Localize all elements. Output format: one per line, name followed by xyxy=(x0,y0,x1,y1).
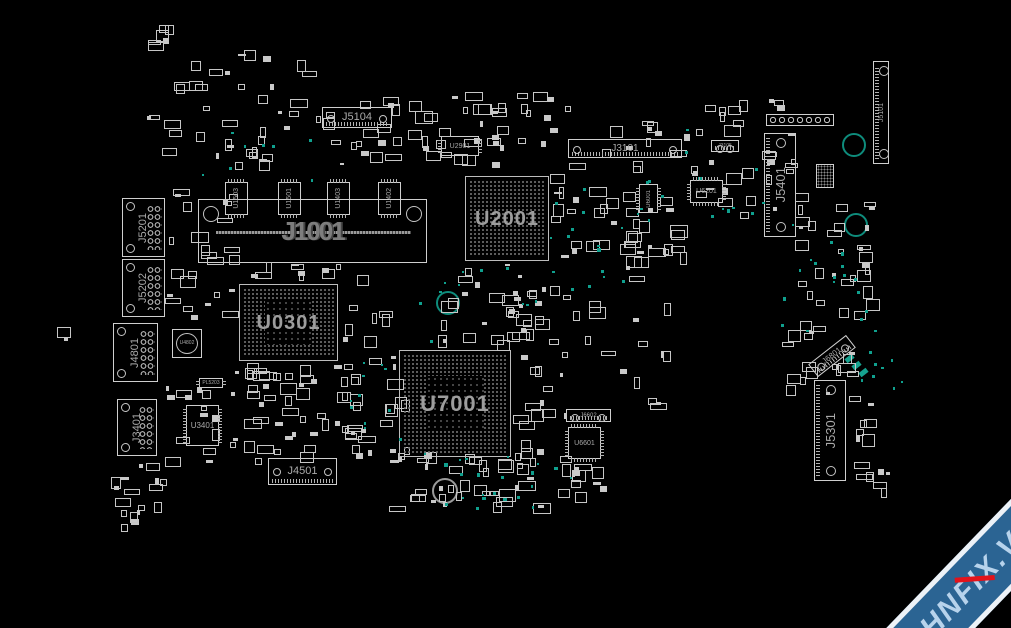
smd-part xyxy=(139,464,143,468)
connector-j5301-label: J5301 xyxy=(824,413,837,448)
smd-part xyxy=(856,474,873,480)
led-indicator xyxy=(858,368,868,377)
smd-part xyxy=(543,386,553,392)
test-point xyxy=(462,497,465,500)
test-point xyxy=(814,262,817,265)
smd-part xyxy=(248,385,258,394)
test-point xyxy=(458,284,460,286)
smd-part xyxy=(285,373,293,380)
smd-part xyxy=(183,306,193,312)
smd-part xyxy=(270,84,275,90)
smd-part xyxy=(492,162,500,168)
smd-part xyxy=(360,101,371,109)
smd-part xyxy=(336,264,342,270)
chip-u6601: U6601 xyxy=(568,427,601,459)
smd-part xyxy=(439,128,451,137)
smd-part xyxy=(560,373,563,377)
smd-part xyxy=(124,489,140,495)
smd-part xyxy=(513,291,518,295)
smd-part xyxy=(214,292,221,299)
smd-part xyxy=(379,311,394,318)
test-point xyxy=(244,145,247,148)
test-point xyxy=(384,368,387,371)
smd-part xyxy=(862,434,875,447)
test-point xyxy=(501,476,504,479)
smd-part xyxy=(473,104,491,116)
smd-part xyxy=(185,395,192,401)
smd-part xyxy=(572,249,577,254)
smd-part xyxy=(361,151,369,156)
test-point xyxy=(799,269,802,272)
smd-part xyxy=(799,227,803,230)
smd-part xyxy=(380,420,394,427)
smd-part xyxy=(558,489,570,498)
test-point xyxy=(860,318,863,321)
smd-part xyxy=(196,132,205,142)
smd-part xyxy=(273,373,281,381)
smd-part xyxy=(275,422,283,426)
smd-part xyxy=(878,469,884,475)
smd-part xyxy=(304,445,315,453)
test-point xyxy=(597,245,599,247)
smd-part xyxy=(549,339,559,346)
smd-part xyxy=(159,25,169,33)
test-point xyxy=(582,211,585,214)
smd-part xyxy=(589,187,606,197)
smd-part xyxy=(492,108,507,117)
smd-part xyxy=(670,225,688,238)
smd-part xyxy=(310,432,318,436)
smd-part xyxy=(258,95,269,103)
connector-j6602-label: J6602 xyxy=(580,413,596,419)
connector-j5401: J5401 xyxy=(764,133,796,237)
test-point xyxy=(806,330,809,333)
smd-part xyxy=(518,138,526,144)
smd-part xyxy=(648,208,653,211)
smd-part xyxy=(342,392,348,401)
connector-j3101: J3101 xyxy=(568,139,682,158)
smd-part xyxy=(385,404,398,417)
test-point xyxy=(477,473,481,477)
smd-part xyxy=(343,337,348,342)
test-point xyxy=(755,168,758,171)
smd-part xyxy=(827,230,843,238)
smd-part xyxy=(533,503,551,514)
smd-part xyxy=(493,141,499,146)
smd-part xyxy=(171,269,185,279)
smd-part xyxy=(229,255,241,265)
test-point xyxy=(732,207,734,209)
connector-j5301: J5301 xyxy=(814,380,846,481)
smd-part xyxy=(391,356,396,359)
smd-part xyxy=(563,295,572,301)
smd-part xyxy=(782,342,794,348)
smd-part xyxy=(525,403,541,411)
test-point xyxy=(465,458,468,461)
smd-part xyxy=(209,69,223,76)
test-point xyxy=(661,195,664,198)
ram-u1403-label: U1403 xyxy=(335,188,342,209)
connector-j3105: J3105 xyxy=(711,140,739,152)
smd-part xyxy=(553,204,565,217)
smd-part xyxy=(696,129,703,136)
smd-part xyxy=(573,311,580,321)
smd-part xyxy=(322,419,330,431)
test-point xyxy=(601,270,604,273)
test-point xyxy=(893,387,896,390)
test-point xyxy=(781,324,784,327)
smd-part xyxy=(527,291,538,296)
smd-part xyxy=(206,460,213,463)
smd-part xyxy=(364,336,376,348)
smd-part xyxy=(593,240,610,251)
test-point xyxy=(874,330,877,333)
smd-part xyxy=(244,441,255,453)
test-point xyxy=(202,174,204,176)
smd-part xyxy=(344,364,354,371)
connector-j5104: J5104 xyxy=(322,107,392,128)
smd-part xyxy=(393,364,396,370)
chip-u2901-label: U2901 xyxy=(450,143,471,150)
smd-part xyxy=(465,268,472,276)
smd-part xyxy=(335,421,340,426)
smd-part xyxy=(345,324,353,335)
smd-part xyxy=(291,264,299,267)
smd-part xyxy=(115,498,132,508)
connector-j3105-label: J3105 xyxy=(718,144,732,149)
smd-part xyxy=(523,320,532,328)
test-point xyxy=(364,422,367,425)
smd-part xyxy=(164,120,181,129)
pin-header xyxy=(766,114,834,126)
test-point xyxy=(833,281,835,283)
smd-part xyxy=(167,294,173,297)
test-point xyxy=(358,394,361,397)
smd-part xyxy=(500,145,504,151)
test-point xyxy=(504,498,507,501)
smd-part xyxy=(746,196,755,206)
test-point xyxy=(445,503,448,506)
smd-part xyxy=(289,111,300,117)
smd-part xyxy=(664,303,671,315)
ram-u1501-label: U1501 xyxy=(286,188,293,209)
smd-part xyxy=(705,105,716,112)
smd-part xyxy=(465,92,482,102)
smd-part xyxy=(859,247,863,252)
smd-part xyxy=(358,436,376,444)
connector-j4801-label: J4801 xyxy=(130,338,141,368)
smd-part xyxy=(839,308,849,318)
smd-part xyxy=(564,413,567,419)
smd-part xyxy=(462,155,476,166)
test-point xyxy=(363,362,365,364)
test-point xyxy=(459,459,461,461)
smd-part xyxy=(806,367,818,379)
smd-part xyxy=(253,417,269,424)
smd-part xyxy=(223,199,229,205)
test-point xyxy=(476,507,479,510)
test-point xyxy=(865,310,868,313)
test-point xyxy=(507,456,510,459)
test-point xyxy=(881,367,884,370)
smd-part xyxy=(474,485,488,495)
test-point xyxy=(535,300,537,302)
smd-part xyxy=(857,270,871,282)
smd-part xyxy=(259,402,264,407)
smd-part xyxy=(836,204,848,212)
smd-part xyxy=(620,369,627,374)
smd-part xyxy=(130,512,138,523)
bga-u2001-label: U2001 xyxy=(475,209,539,229)
smd-part xyxy=(167,395,175,400)
smd-part xyxy=(795,193,809,202)
chip-pl5203-label: PL5203 xyxy=(202,381,219,386)
test-point xyxy=(686,129,688,131)
smd-part xyxy=(498,460,514,473)
smd-part xyxy=(865,225,869,231)
smd-part xyxy=(390,460,398,463)
smd-part xyxy=(165,457,181,467)
test-point xyxy=(891,359,893,361)
smd-part xyxy=(202,390,211,399)
smd-part xyxy=(519,304,523,308)
test-point xyxy=(399,438,402,441)
smd-part xyxy=(491,335,504,345)
smd-part xyxy=(341,377,348,387)
smd-part xyxy=(886,472,890,476)
smd-part xyxy=(183,202,192,212)
dimm-j1001-label: J1001 xyxy=(281,218,343,244)
smd-part xyxy=(585,336,591,345)
smd-part xyxy=(257,445,275,454)
smd-part xyxy=(349,305,358,310)
test-point xyxy=(480,269,483,272)
smd-part xyxy=(372,313,378,324)
smd-part xyxy=(460,480,470,493)
test-point xyxy=(350,406,353,409)
test-point xyxy=(350,400,352,402)
smd-part xyxy=(620,244,636,256)
smd-part xyxy=(316,116,321,123)
smd-part xyxy=(439,486,444,491)
smd-part xyxy=(693,171,699,174)
smd-part xyxy=(166,386,169,392)
smd-part xyxy=(441,152,453,158)
test-point xyxy=(532,506,534,508)
connector-j4501-label: J4501 xyxy=(288,466,318,477)
bga-u7001-label: U7001 xyxy=(420,393,490,415)
test-point xyxy=(810,259,812,261)
smd-part xyxy=(788,330,801,342)
smd-part xyxy=(296,388,310,400)
connector-j5202: J5202 xyxy=(122,259,165,317)
test-point xyxy=(550,237,552,239)
ram-u1402: U1402 xyxy=(378,182,401,215)
smd-part xyxy=(565,106,571,112)
ram-u1503-label: U1503 xyxy=(233,188,240,209)
smd-part xyxy=(733,120,744,127)
smd-part xyxy=(863,286,873,299)
smd-part xyxy=(280,383,297,395)
test-point xyxy=(792,224,795,227)
connector-j5101: J5101 xyxy=(873,61,889,164)
smd-part xyxy=(740,212,749,219)
smd-part xyxy=(169,130,183,137)
smd-part xyxy=(655,131,661,135)
smd-part xyxy=(728,106,741,115)
smd-part xyxy=(389,506,406,512)
connector-j3401: J3401 xyxy=(117,399,157,456)
smd-part xyxy=(726,173,742,184)
smd-part xyxy=(530,458,537,468)
test-point xyxy=(843,274,846,277)
mounting-hole xyxy=(842,133,866,157)
test-point xyxy=(482,494,485,497)
test-point xyxy=(526,304,528,306)
test-point xyxy=(570,477,573,480)
smd-part xyxy=(656,402,661,405)
smd-part xyxy=(463,107,468,115)
smd-part xyxy=(483,468,489,477)
smd-part xyxy=(518,275,522,278)
bga-u7001: U7001 xyxy=(399,350,511,457)
smd-part xyxy=(742,168,755,179)
smd-part xyxy=(804,333,813,340)
smd-part xyxy=(300,416,306,423)
smd-part xyxy=(684,134,689,140)
smd-part xyxy=(786,385,796,396)
smd-part xyxy=(263,384,270,389)
test-point xyxy=(833,276,836,279)
smd-part xyxy=(574,464,592,471)
smd-part xyxy=(592,467,604,479)
smd-part xyxy=(544,115,551,121)
smd-part xyxy=(660,197,673,207)
smd-part xyxy=(369,358,382,366)
smd-part xyxy=(162,148,177,156)
connector-j5104-label: J5104 xyxy=(342,112,372,123)
smd-part xyxy=(64,338,68,341)
smd-part xyxy=(229,289,234,292)
smd-part xyxy=(542,287,546,292)
smd-part xyxy=(411,494,419,502)
smd-part xyxy=(342,426,349,433)
smd-part xyxy=(235,162,243,170)
smd-part xyxy=(284,126,290,130)
smd-part xyxy=(438,335,448,348)
smd-part xyxy=(263,56,271,62)
smd-part xyxy=(808,221,816,231)
smd-part xyxy=(589,307,606,319)
connector-j5101-label: J5101 xyxy=(878,103,885,122)
smd-part xyxy=(390,449,396,454)
test-point xyxy=(272,145,276,149)
test-point xyxy=(462,271,464,273)
smd-part xyxy=(629,276,645,282)
smd-part xyxy=(235,371,239,374)
smd-part xyxy=(331,140,341,145)
test-point xyxy=(555,202,558,205)
smd-part xyxy=(285,396,293,406)
smd-part xyxy=(575,492,587,503)
smd-part xyxy=(264,395,276,402)
smd-part xyxy=(458,276,473,282)
chip-u6001-label: U6001 xyxy=(646,190,652,208)
smd-part xyxy=(274,449,281,455)
smd-part xyxy=(633,219,640,229)
smd-part xyxy=(146,463,160,471)
smd-part xyxy=(869,207,875,210)
smd-part xyxy=(517,464,529,476)
smd-part xyxy=(121,524,127,532)
test-point xyxy=(506,267,509,270)
smd-part xyxy=(431,500,436,503)
smd-part xyxy=(462,292,468,296)
connector-j5202-label: J5202 xyxy=(138,273,149,303)
test-point xyxy=(364,427,366,429)
test-point xyxy=(381,364,383,366)
smd-part xyxy=(843,354,852,364)
smd-part xyxy=(856,436,860,442)
smd-part xyxy=(633,166,641,173)
smd-part xyxy=(813,326,826,332)
smd-part xyxy=(363,129,379,137)
smd-part xyxy=(225,71,229,76)
smd-part xyxy=(489,293,506,303)
smd-part xyxy=(121,477,129,480)
connector-j5201-label: J5201 xyxy=(138,213,149,243)
test-point xyxy=(571,288,574,291)
smd-part xyxy=(482,322,487,326)
smd-part xyxy=(521,355,528,360)
connector-j6602: J6602 xyxy=(566,409,611,422)
smd-part xyxy=(541,141,546,147)
smd-part xyxy=(562,352,568,358)
smd-part xyxy=(567,209,576,214)
smd-part xyxy=(392,104,401,116)
smd-part xyxy=(492,135,499,140)
smd-part xyxy=(299,275,305,282)
smd-part xyxy=(191,315,198,320)
test-point xyxy=(751,212,754,215)
test-point xyxy=(854,278,857,281)
test-point xyxy=(783,297,786,300)
smd-part xyxy=(860,420,867,428)
smd-part xyxy=(247,370,253,380)
smd-part xyxy=(521,328,526,334)
smd-part xyxy=(191,232,209,243)
smd-part xyxy=(409,101,422,113)
smd-part xyxy=(637,251,644,254)
smd-part xyxy=(217,218,232,223)
smd-part xyxy=(370,152,384,164)
test-point xyxy=(571,228,574,231)
smd-part xyxy=(201,245,210,256)
bga-u2001: U2001 xyxy=(465,176,549,261)
chip-u4802-label: U4802 xyxy=(180,341,195,346)
chip-u4802: U4802 xyxy=(172,329,202,358)
chip-u6601-label: U6601 xyxy=(574,440,595,447)
test-point xyxy=(309,139,312,142)
smd-part xyxy=(573,197,579,204)
smd-part xyxy=(57,327,71,338)
smd-part xyxy=(787,374,802,384)
test-point xyxy=(762,202,765,205)
smd-part xyxy=(191,61,202,70)
smd-part xyxy=(149,484,163,491)
smd-part xyxy=(282,408,298,416)
test-point xyxy=(841,265,844,268)
